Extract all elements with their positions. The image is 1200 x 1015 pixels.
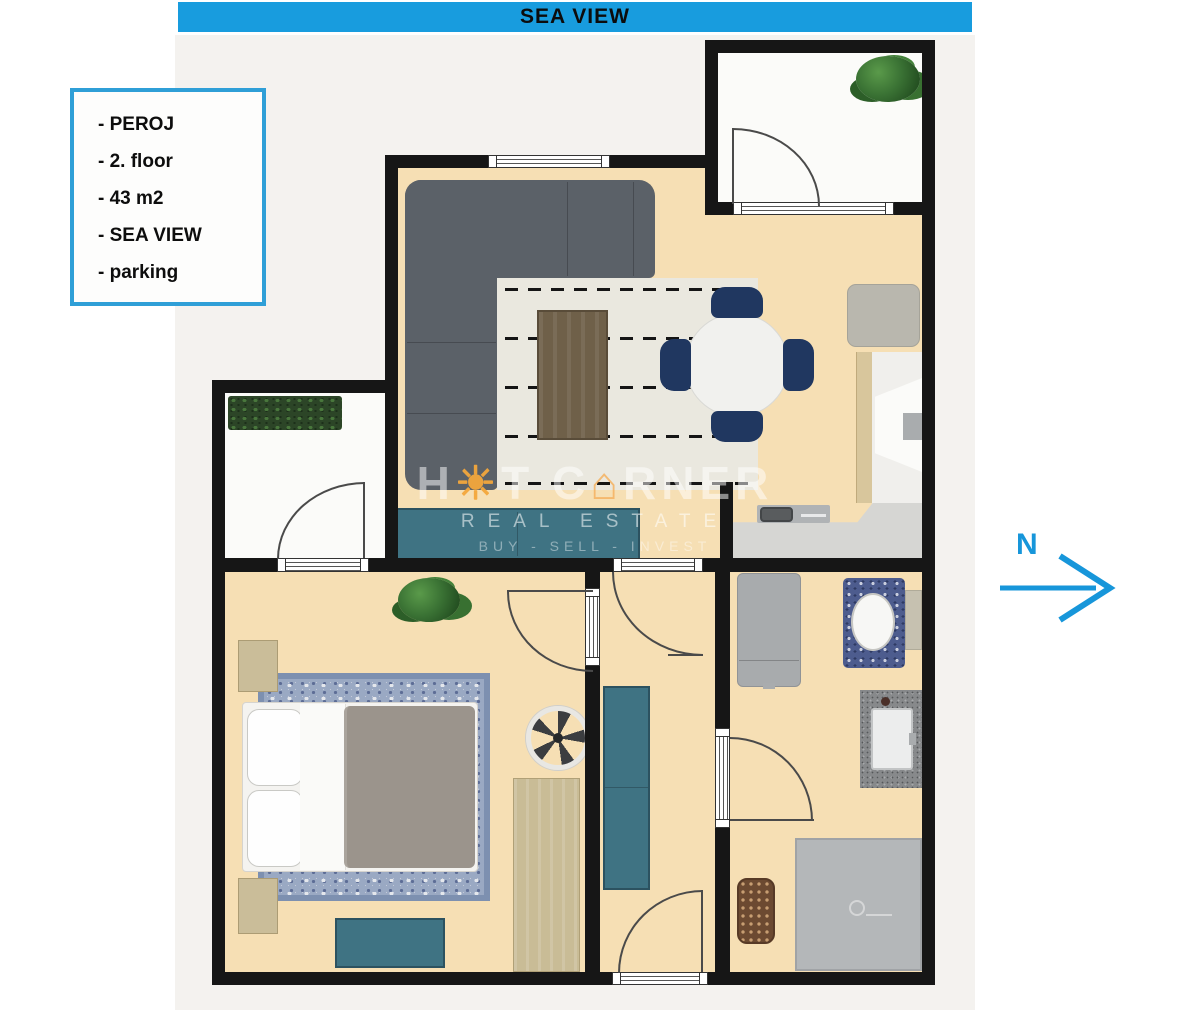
door-frame-hallway-top bbox=[613, 558, 703, 572]
hallway-cabinet-divider bbox=[605, 787, 648, 788]
door-leaf-bedroom bbox=[507, 590, 593, 592]
wardrobe bbox=[513, 778, 580, 972]
bed-blanket bbox=[344, 706, 475, 868]
wall-kitchen-stub bbox=[720, 482, 733, 562]
wall-terrace-left bbox=[705, 40, 718, 215]
sofa-cushion-seam bbox=[567, 182, 568, 276]
wall-bedroom-right-lower bbox=[585, 666, 600, 985]
window-living-top bbox=[488, 155, 610, 168]
washing-machine-notch bbox=[763, 683, 775, 689]
nightstand-top bbox=[238, 640, 278, 692]
ceiling-fan-hub bbox=[553, 733, 563, 743]
washing-machine-line bbox=[739, 660, 799, 661]
shower-head-icon bbox=[849, 900, 865, 916]
floor-plan-page: H☀T C⌂RNER REAL ESTATE BUY - SELL - INVE… bbox=[0, 0, 1200, 1015]
balcony-hedge-planter bbox=[228, 396, 342, 430]
dining-table bbox=[685, 313, 789, 417]
bathroom-mat bbox=[737, 878, 775, 944]
terrace-plant bbox=[856, 56, 920, 102]
wall-mid-right bbox=[703, 558, 935, 572]
dining-chair-east bbox=[783, 339, 814, 391]
door-frame-hallway-bottom bbox=[612, 972, 708, 985]
fridge-door bbox=[903, 413, 922, 440]
dining-chair-south bbox=[711, 411, 763, 442]
sofa-left-section bbox=[405, 180, 498, 490]
rug-stripe bbox=[505, 482, 749, 485]
sink-faucet bbox=[909, 733, 916, 745]
door-leaf-hallway-bottom bbox=[701, 890, 703, 972]
info-item-area: - 43 m2 bbox=[98, 180, 262, 217]
door-leaf-balcony bbox=[363, 482, 365, 558]
wall-bottom-left bbox=[212, 972, 612, 985]
kitchen-sink-basin bbox=[760, 507, 793, 522]
wall-bedroom-right-upper bbox=[585, 558, 600, 588]
sliding-door-balcony bbox=[277, 558, 369, 572]
dining-chair-north bbox=[711, 287, 763, 318]
bedroom-plant bbox=[398, 578, 460, 622]
bedroom-bench bbox=[335, 918, 445, 968]
vanity-faucet-dot bbox=[881, 697, 890, 706]
bed-pillow bbox=[247, 790, 303, 867]
sea-view-banner: SEA VIEW bbox=[178, 2, 972, 32]
rug-stripe bbox=[505, 288, 749, 291]
info-item-parking: - parking bbox=[98, 254, 262, 291]
listing-info-box: - PEROJ - 2. floor - 43 m2 - SEA VIEW - … bbox=[70, 88, 266, 306]
info-item-seaview: - SEA VIEW bbox=[98, 217, 262, 254]
wall-bathroom-left-upper bbox=[715, 558, 730, 728]
shower-arm-icon bbox=[866, 914, 892, 916]
north-arrow-icon bbox=[996, 548, 1118, 628]
bed-pillow bbox=[247, 709, 303, 786]
bed-sheet-fold bbox=[300, 704, 346, 870]
washing-machine bbox=[737, 573, 801, 687]
door-leaf-terrace bbox=[732, 128, 734, 204]
kitchen-counter-wood-edge bbox=[856, 352, 872, 503]
kitchen-sink-drainer bbox=[801, 514, 826, 517]
sofa-cushion-seam bbox=[407, 413, 496, 414]
dining-chair-west bbox=[660, 339, 691, 391]
wall-bathroom-left-lower bbox=[715, 828, 730, 985]
wall-left-outer bbox=[212, 380, 225, 985]
bathroom-sink bbox=[871, 708, 913, 770]
wall-terrace-bottom-right bbox=[894, 202, 935, 215]
toilet bbox=[851, 593, 895, 651]
sofa-cushion-seam bbox=[633, 182, 634, 276]
wall-living-left bbox=[385, 155, 398, 572]
hallway-cabinet bbox=[603, 686, 650, 890]
wall-mid-center bbox=[369, 558, 613, 572]
door-frame-bathroom bbox=[715, 728, 730, 828]
wall-bottom-right bbox=[708, 972, 935, 985]
door-leaf-hallway-top bbox=[668, 654, 703, 656]
sideboard-divider bbox=[517, 512, 518, 556]
wall-right-outer bbox=[922, 40, 935, 985]
kitchen-bench bbox=[847, 284, 920, 347]
nightstand-bottom bbox=[238, 878, 278, 934]
sofa-cushion-seam bbox=[407, 342, 496, 343]
door-leaf-bathroom bbox=[730, 819, 814, 821]
coffee-table bbox=[537, 310, 608, 440]
wall-terrace-top bbox=[705, 40, 935, 53]
toilet-cistern-cabinet bbox=[905, 590, 922, 650]
wall-balcony-top bbox=[212, 380, 385, 393]
info-item-location: - PEROJ bbox=[98, 106, 262, 143]
wall-terrace-bottom-left bbox=[705, 202, 735, 215]
info-item-floor: - 2. floor bbox=[98, 143, 262, 180]
